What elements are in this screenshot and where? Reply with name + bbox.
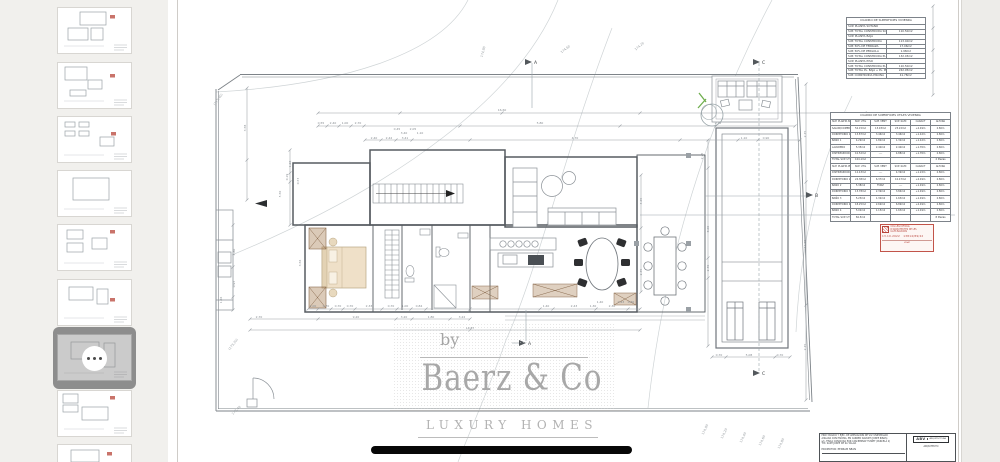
dimension-label: 2,05 bbox=[410, 127, 417, 131]
dimension-label: 0,97 bbox=[232, 281, 236, 288]
dimension-label: 5,08 bbox=[746, 353, 753, 357]
dimension-label: 1,40 bbox=[597, 300, 604, 304]
dimension-label: 2,40 bbox=[330, 121, 337, 125]
dimension-label: 0,19 bbox=[285, 174, 289, 181]
dimension-label: 2,40 bbox=[371, 136, 378, 140]
stamp-logo-icon bbox=[882, 226, 889, 233]
dimension-label: 3,40 bbox=[401, 131, 408, 135]
table-cell bbox=[871, 215, 891, 221]
dimension-label: 2,75 bbox=[803, 131, 807, 138]
dimension-label: 0,45 bbox=[394, 127, 401, 131]
contour-label: 174,80 bbox=[777, 438, 785, 450]
dimension-label: 8,00 bbox=[706, 226, 710, 233]
contour-label: (173,40) bbox=[213, 93, 224, 106]
dimension-label: 0,70 bbox=[716, 353, 723, 357]
dimension-labels: 16,600,552,401,002,705,802,750,452,053,4… bbox=[219, 108, 807, 357]
pool bbox=[716, 128, 788, 348]
project-line: T.M. SANT JOSEP DE SA TALAIA bbox=[822, 443, 905, 446]
basement-staircase bbox=[385, 230, 399, 298]
dimension-label: 2,75 bbox=[803, 344, 807, 351]
table-cell: TOTAL SUP. UTIL PL. PISO bbox=[831, 215, 851, 221]
table-cell bbox=[911, 215, 931, 221]
title-block-lower-row bbox=[822, 453, 905, 460]
dimension-label: 0,90 bbox=[763, 136, 770, 140]
contour-label: (173,20) bbox=[227, 338, 239, 351]
dimension-label: 2,70 bbox=[706, 265, 710, 272]
dimension-label: 1,10 bbox=[417, 131, 424, 135]
section-marker-label: A bbox=[534, 60, 538, 66]
contour-label: 173,40 bbox=[231, 405, 242, 416]
dimension-label: 1,04 bbox=[219, 297, 223, 304]
dimension-label: 3,58 bbox=[243, 125, 247, 132]
table-cell bbox=[891, 215, 911, 221]
architect-logo: ABV ARQUITECTURA bbox=[913, 436, 949, 443]
dimension-label: 0,70 bbox=[347, 304, 354, 308]
dimension-label: 3,22 bbox=[459, 315, 466, 319]
table-cell: 8 Piezas bbox=[931, 215, 951, 221]
dimension-label: 2,30 bbox=[609, 304, 616, 308]
contour-label: 174,20 bbox=[634, 41, 645, 51]
dining-table bbox=[574, 237, 630, 290]
dimension-label: 2,75 bbox=[715, 121, 722, 125]
dimension-label: 1,80 bbox=[428, 315, 435, 319]
dimension-label: 0,70 bbox=[335, 304, 342, 308]
stamp-date: 13.10.2022 bbox=[882, 234, 900, 238]
dimension-label: 1,00 bbox=[342, 121, 349, 125]
dimension-label: 2,75 bbox=[700, 153, 704, 160]
dimension-label: 1,26 bbox=[288, 161, 292, 168]
dimension-label: 4,80 bbox=[232, 249, 236, 256]
section-marker-label: C bbox=[762, 60, 765, 66]
living-room-furniture bbox=[513, 168, 616, 227]
dimension-label: 0,70 bbox=[388, 304, 395, 308]
dimension-label: 11,00 bbox=[803, 240, 807, 249]
table-title: CUADRO DE SUPERFICIES VIVIENDA bbox=[847, 18, 926, 25]
kitchen bbox=[490, 238, 556, 267]
contour-label: 174,60 bbox=[758, 435, 766, 447]
architect-logo-text: ABV bbox=[916, 437, 925, 441]
dimension-label: 16,60 bbox=[498, 108, 507, 112]
table-cell: 84.5m2 bbox=[851, 215, 871, 221]
dimension-label: 4,70 bbox=[572, 136, 579, 140]
annex-and-gate bbox=[216, 210, 274, 407]
dimension-label: 1,00 bbox=[402, 304, 409, 308]
dimension-label: 1,00 bbox=[310, 304, 317, 308]
dimension-label: 5,50 bbox=[278, 191, 282, 198]
dimension-label: 2,75 bbox=[639, 269, 643, 276]
dimension-label: 3,56 bbox=[298, 260, 302, 267]
contour-label: 174,40 bbox=[739, 432, 747, 444]
dimension-label: 1,30 bbox=[590, 304, 597, 308]
table-title: CUADRO DE SUPERFICIES UTILES VIVIENDA bbox=[831, 113, 951, 120]
bedroom-furniture bbox=[309, 228, 366, 308]
section-arrow-icon bbox=[806, 192, 813, 198]
outdoor-lounge bbox=[712, 76, 782, 122]
contour-label: 174,80 bbox=[480, 46, 487, 58]
dimension-label: 0,43 bbox=[618, 300, 625, 304]
surface-table-built: CUADRO DE SUPERFICIES VIVIENDASUP. PLANT… bbox=[846, 17, 926, 79]
dimension-label: 0,70 bbox=[323, 304, 330, 308]
title-block: PROY. BASICO Y EJEC. DE AMPLIACION DE VI… bbox=[819, 433, 956, 462]
dimension-label: 9,20 bbox=[353, 315, 360, 319]
contour-label: 174,60 bbox=[560, 44, 571, 54]
architect-role: ARQUITECTO bbox=[923, 445, 938, 448]
contour-labels: (173,40)(173,20)173,40174,80174,60174,20… bbox=[213, 41, 786, 449]
section-marker-label: B bbox=[815, 193, 818, 199]
pdf-viewer: 16,600,552,401,002,705,802,750,452,053,4… bbox=[0, 0, 1000, 462]
stair-direction-arrow-icon bbox=[446, 190, 455, 197]
dimension-label: 0,84 bbox=[416, 304, 423, 308]
watermark-redaction-bar bbox=[371, 446, 632, 454]
table-label: SUP. CONSTRUIDA PISCINA bbox=[847, 73, 887, 78]
dimension-label: 3,41 bbox=[402, 136, 409, 140]
dimension-label: 3,20 bbox=[401, 315, 408, 319]
approval-stamp: COL·LEGI OFICIAL D'ARQUITECTES DE LES IL… bbox=[880, 224, 934, 252]
contour-label: 174,00 bbox=[701, 424, 709, 436]
promoter-line: PROMOTOR: PEDRAM NEAN bbox=[822, 448, 905, 451]
dimension-label: 2,70 bbox=[256, 315, 263, 319]
bathroom-fixtures bbox=[405, 229, 468, 308]
section-arrow-icon bbox=[519, 340, 526, 346]
dimension-label: 2,33 bbox=[366, 304, 373, 308]
surface-table-useful: CUADRO DE SUPERFICIES UTILES VIVIENDASUP… bbox=[830, 112, 951, 222]
dimension-label: 0,57 bbox=[296, 178, 300, 185]
section-marker-label: C bbox=[762, 371, 765, 377]
architect-logo-suffix: ARQUITECTURA bbox=[927, 438, 946, 440]
dimension-label: 0,55 bbox=[318, 121, 325, 125]
dimension-label: 2,43 bbox=[571, 304, 578, 308]
dimension-label: 4,35 bbox=[639, 198, 643, 205]
dimension-label: 14,87 bbox=[466, 326, 475, 330]
entrance-arrow-icon bbox=[255, 200, 267, 207]
dimension-label: 2,70 bbox=[355, 121, 362, 125]
dimension-label: 5,80 bbox=[537, 121, 544, 125]
outdoor-benches bbox=[472, 284, 636, 305]
stamp-number: 13814/89/22 bbox=[903, 234, 923, 238]
dimension-label: 2,42 bbox=[386, 136, 393, 140]
dimension-label: 0,70 bbox=[777, 353, 784, 357]
table-value: 41.78m2 bbox=[886, 73, 926, 78]
section-marker-label: A bbox=[528, 341, 532, 347]
stamp-footer: VISAT bbox=[882, 240, 932, 244]
dimension-label: 1,40 bbox=[543, 304, 550, 308]
dimension-label: 0,30 bbox=[628, 300, 635, 304]
section-arrow-icon bbox=[525, 59, 532, 65]
contour-label: 174,20 bbox=[720, 428, 728, 440]
dimension-label: 1,10 bbox=[741, 136, 748, 140]
